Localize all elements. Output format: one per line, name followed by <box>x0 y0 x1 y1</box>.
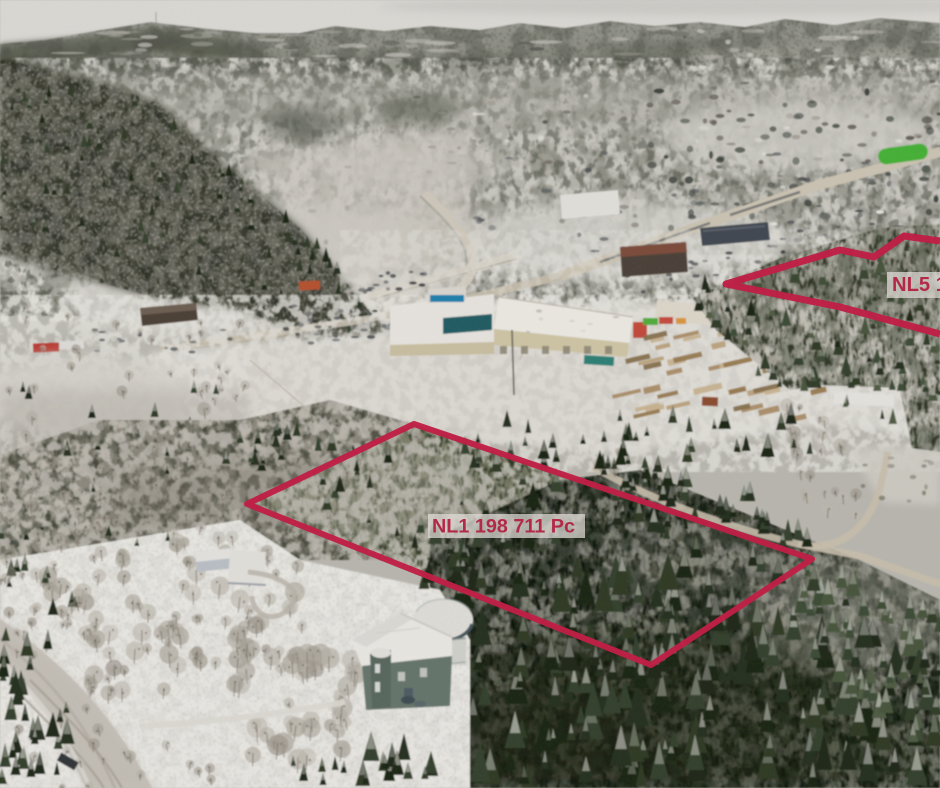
svg-text:NL5 1: NL5 1 <box>892 274 940 296</box>
svg-text:NL1 198 711 Pc: NL1 198 711 Pc <box>432 516 575 538</box>
